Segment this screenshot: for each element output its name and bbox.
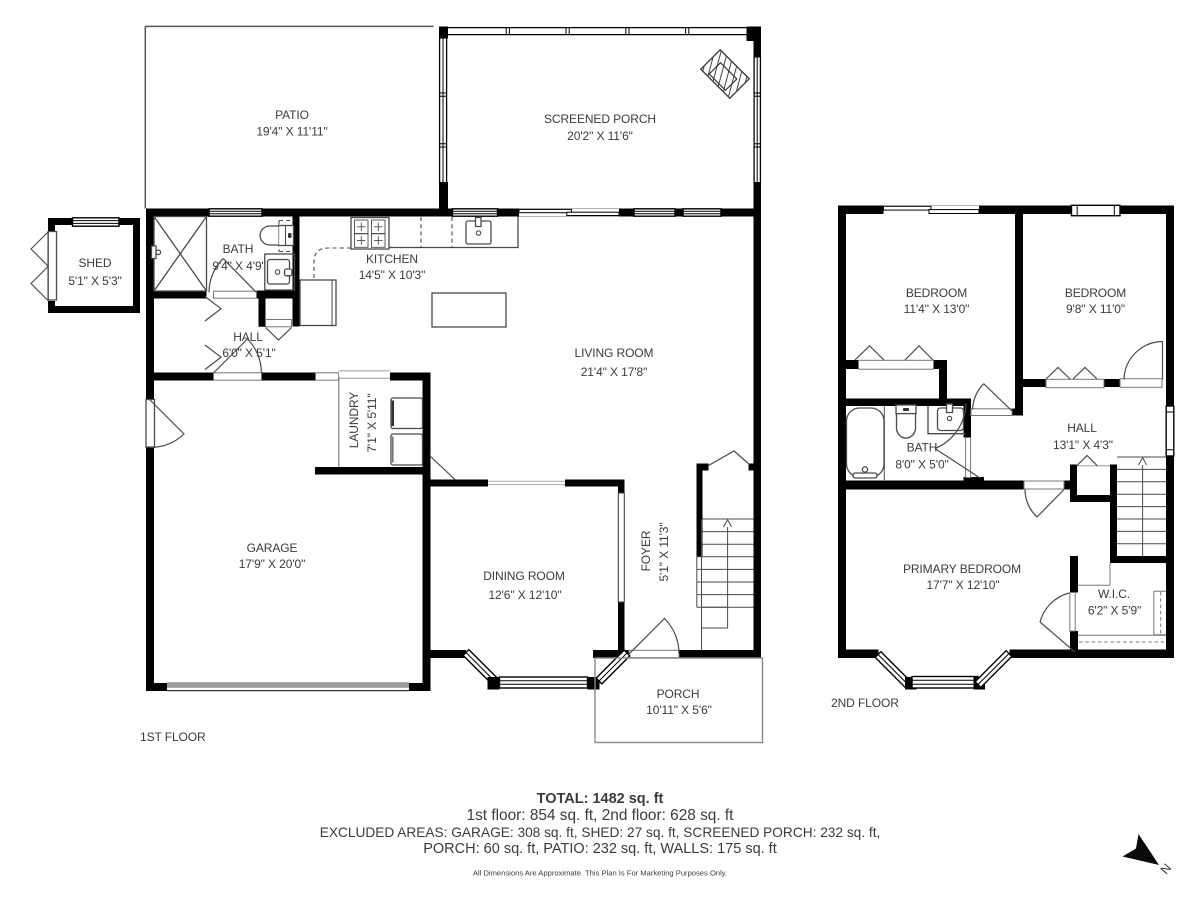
svg-text:GARAGE: GARAGE: [247, 541, 298, 555]
svg-text:14'5" X 10'3": 14'5" X 10'3": [359, 268, 426, 282]
svg-text:10'11" X 5'6": 10'11" X 5'6": [646, 703, 712, 717]
svg-text:6'2" X 5'9": 6'2" X 5'9": [1088, 604, 1141, 618]
svg-text:FOYER: FOYER: [639, 530, 653, 571]
svg-text:PORCH: PORCH: [657, 687, 700, 701]
svg-text:7'1" X 5'11": 7'1" X 5'11": [365, 393, 379, 452]
svg-text:EXCLUDED AREAS: GARAGE: 308 sq: EXCLUDED AREAS: GARAGE: 308 sq. ft, SHED…: [320, 825, 881, 840]
svg-text:HALL: HALL: [233, 330, 263, 344]
svg-text:17'9" X 20'0": 17'9" X 20'0": [239, 557, 306, 571]
svg-text:W.I.C.: W.I.C.: [1098, 587, 1130, 601]
svg-text:LAUNDRY: LAUNDRY: [347, 392, 361, 449]
svg-text:21'4" X 17'8": 21'4" X 17'8": [581, 365, 648, 379]
svg-text:19'4" X 11'11": 19'4" X 11'11": [256, 125, 327, 139]
svg-text:SHED: SHED: [79, 256, 112, 270]
svg-text:BATH: BATH: [907, 441, 938, 455]
svg-text:17'7" X 12'10": 17'7" X 12'10": [926, 578, 999, 592]
svg-text:1st floor: 854 sq. ft, 2nd flo: 1st floor: 854 sq. ft, 2nd floor: 628 sq…: [467, 807, 735, 824]
svg-text:BEDROOM: BEDROOM: [906, 286, 967, 300]
svg-text:13'1" X 4'3": 13'1" X 4'3": [1053, 438, 1113, 452]
svg-text:All Dimensions Are Approximate: All Dimensions Are Approximate. This Pla…: [473, 869, 727, 878]
svg-text:1ST FLOOR: 1ST FLOOR: [140, 730, 206, 744]
svg-text:PATIO: PATIO: [275, 108, 309, 122]
svg-text:5'1" X 11'3": 5'1" X 11'3": [657, 522, 671, 581]
svg-text:TOTAL: 1482 sq. ft: TOTAL: 1482 sq. ft: [537, 791, 664, 807]
svg-text:KITCHEN: KITCHEN: [366, 252, 418, 266]
svg-text:8'0" X 5'0": 8'0" X 5'0": [895, 458, 948, 472]
svg-text:PRIMARY BEDROOM: PRIMARY BEDROOM: [903, 562, 1021, 576]
svg-text:12'6" X 12'10": 12'6" X 12'10": [488, 588, 561, 602]
svg-text:DINING ROOM: DINING ROOM: [483, 569, 565, 583]
svg-text:HALL: HALL: [1067, 421, 1097, 435]
svg-text:6'0" X 5'1": 6'0" X 5'1": [222, 346, 275, 360]
svg-text:LIVING ROOM: LIVING ROOM: [575, 346, 654, 360]
svg-text:2ND FLOOR: 2ND FLOOR: [831, 696, 899, 710]
svg-text:BATH: BATH: [223, 242, 254, 256]
svg-text:9'8" X 11'0": 9'8" X 11'0": [1066, 302, 1125, 316]
svg-text:BEDROOM: BEDROOM: [1065, 286, 1126, 300]
svg-text:20'2" X 11'6": 20'2" X 11'6": [567, 129, 633, 143]
svg-text:5'1" X 5'3": 5'1" X 5'3": [68, 274, 121, 288]
svg-text:11'4" X 13'0": 11'4" X 13'0": [904, 302, 970, 316]
svg-text:PORCH: 60 sq. ft, PATIO: 232 s: PORCH: 60 sq. ft, PATIO: 232 sq. ft, WAL…: [423, 841, 777, 857]
svg-text:SCREENED PORCH: SCREENED PORCH: [544, 112, 656, 126]
